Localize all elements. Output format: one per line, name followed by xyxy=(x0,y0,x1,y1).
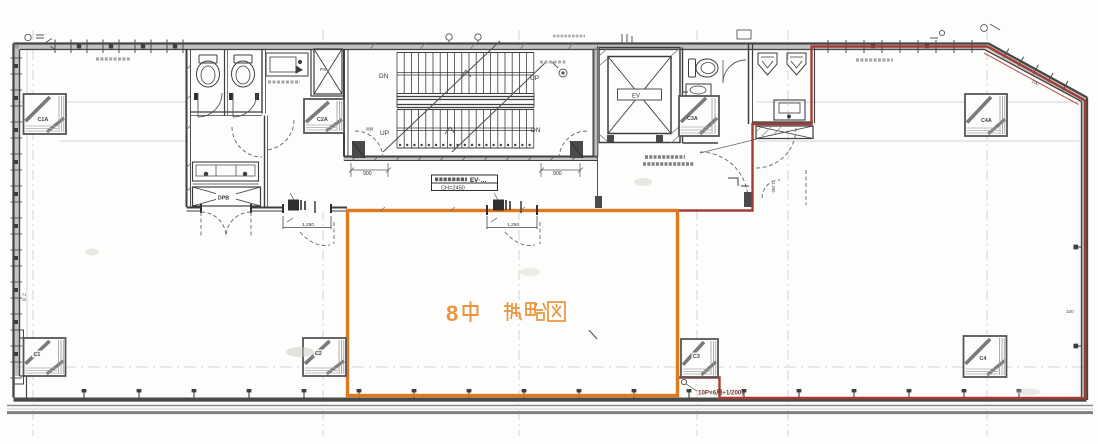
svg-text:1,250: 1,250 xyxy=(302,222,314,228)
svg-text:▤▤: ▤▤ xyxy=(366,127,374,131)
svg-text:C4A: C4A xyxy=(981,118,992,124)
svg-text:C2A: C2A xyxy=(317,117,328,123)
svg-text:UP: UP xyxy=(530,75,539,82)
svg-text:10P×6用+1/200⁆: 10P×6用+1/200⁆ xyxy=(698,390,744,397)
svg-text:C1A: C1A xyxy=(38,117,49,123)
svg-text:UP: UP xyxy=(380,130,389,137)
svg-text:EV: EV xyxy=(632,94,640,100)
svg-text:C1: C1 xyxy=(34,352,41,358)
svg-text:C4: C4 xyxy=(980,356,987,362)
svg-text:PS: PS xyxy=(320,67,326,72)
svg-text:EV·…: EV·… xyxy=(470,177,487,184)
svg-text:900: 900 xyxy=(363,171,372,177)
svg-text:C3A: C3A xyxy=(687,116,698,122)
svg-text:71: 71 xyxy=(22,293,26,297)
svg-text:900: 900 xyxy=(553,171,562,177)
svg-text:100: 100 xyxy=(1066,309,1074,314)
svg-text:8: 8 xyxy=(446,301,458,326)
svg-text:DN: DN xyxy=(531,127,541,134)
svg-text:C3: C3 xyxy=(693,354,700,360)
svg-text:1,250: 1,250 xyxy=(771,182,776,193)
svg-text:C2: C2 xyxy=(315,351,322,357)
svg-text:25: 25 xyxy=(22,298,26,302)
svg-text:DPB: DPB xyxy=(218,196,229,202)
svg-text:CH=2450: CH=2450 xyxy=(441,186,465,192)
svg-text:DN: DN xyxy=(379,73,389,80)
svg-text:1,250: 1,250 xyxy=(507,222,519,228)
